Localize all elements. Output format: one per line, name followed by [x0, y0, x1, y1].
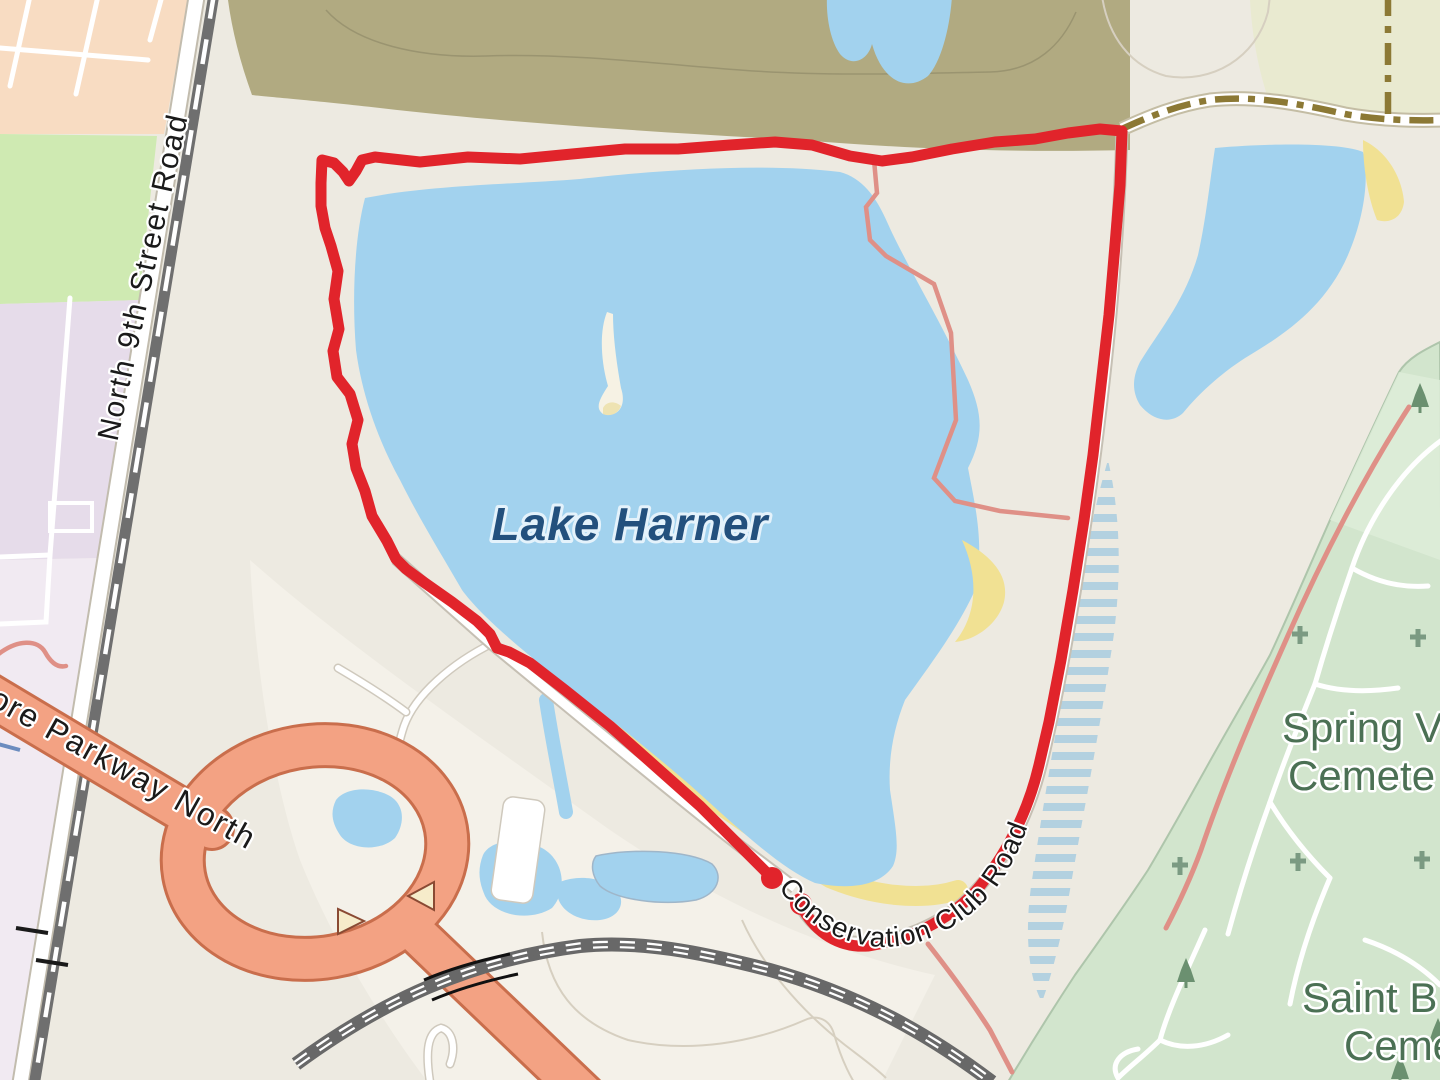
- cemetery-saint-line2: Ceme: [1344, 1022, 1440, 1069]
- lake-name-label: Lake Harner: [492, 498, 770, 550]
- cemetery-saint-line1: Saint B: [1302, 974, 1437, 1021]
- cemetery-spring-label: Spring V Cemete: [1282, 704, 1440, 799]
- cemetery-spring-line1: Spring V: [1282, 704, 1440, 751]
- map-canvas[interactable]: North 9th Street Road ore Parkway North …: [0, 0, 1440, 1080]
- cemetery-spring-line2: Cemete: [1288, 752, 1435, 799]
- route-start-marker[interactable]: [761, 867, 783, 889]
